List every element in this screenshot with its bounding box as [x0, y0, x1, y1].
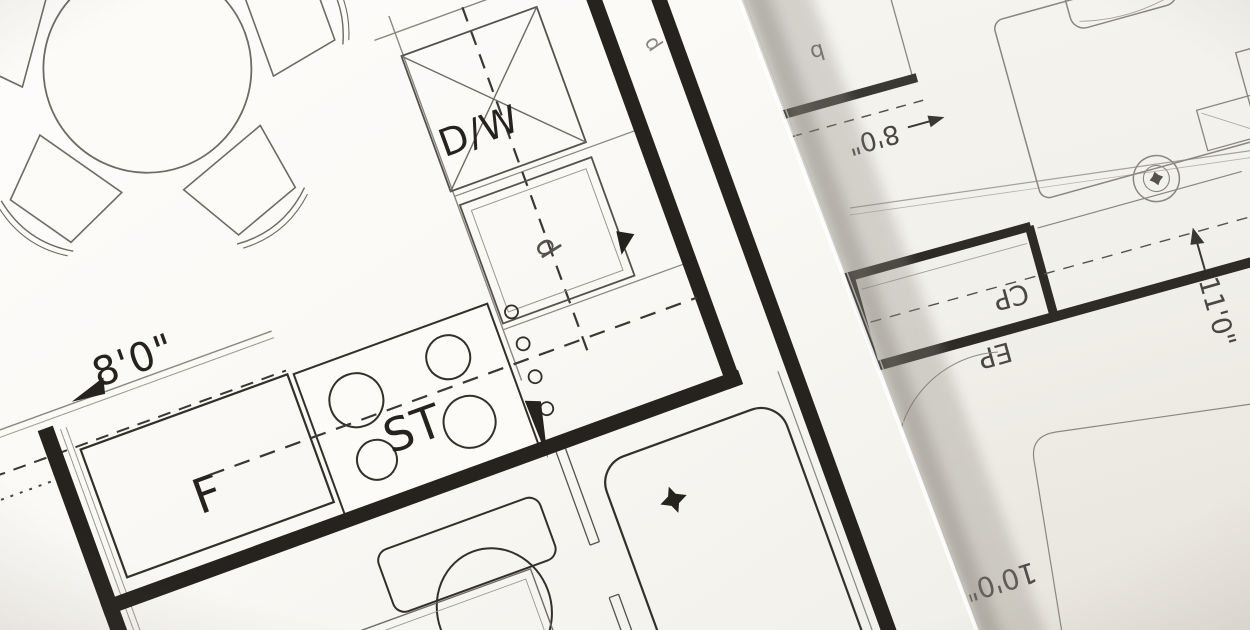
- vignette-overlay: [0, 0, 1250, 630]
- blueprint-scene: b 8'0" CP EP: [0, 0, 1250, 630]
- photo-of-floor-plans: b 8'0" CP EP: [0, 0, 1250, 630]
